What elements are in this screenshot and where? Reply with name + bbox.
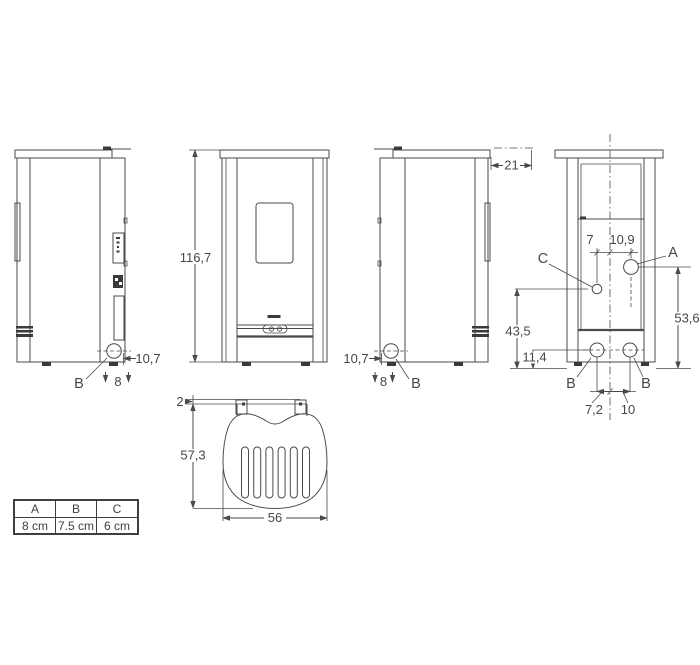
foot — [42, 362, 51, 366]
power-socket — [113, 275, 123, 288]
dim-top-width: 56 — [268, 510, 282, 525]
dim-right-outlet-offset: 10,7 — [343, 351, 368, 366]
dim-rear-b-right: 10 — [621, 402, 635, 417]
dim-left-outlet-offset: 10,7 — [135, 351, 160, 366]
dim-top-depth: 57,3 — [180, 448, 205, 463]
table-header-b: B — [56, 500, 97, 518]
stove-dimension-drawing-page: 10,7 8 B 116,7 — [0, 0, 700, 665]
brand-logo — [268, 315, 281, 318]
table-value-b: 7.5 cm — [56, 518, 97, 535]
table-header-c: C — [97, 500, 139, 518]
dim-rear-c-offset: 7 — [586, 232, 593, 247]
background — [0, 0, 700, 665]
dim-height: 116,7 — [180, 250, 212, 265]
foot — [301, 362, 310, 366]
foot — [109, 362, 118, 366]
dim-left-outlet-size: 8 — [114, 374, 121, 389]
dim-rear-a-height: 53,6 — [674, 311, 699, 326]
technical-drawing: 10,7 8 B 116,7 — [0, 0, 700, 665]
dim-top-bracket: 2 — [176, 394, 183, 409]
foot — [641, 362, 649, 366]
label-a: A — [668, 245, 678, 261]
foot — [574, 362, 582, 366]
foot — [242, 362, 251, 366]
dimension-table: A B C 8 cm 7.5 cm 6 cm — [13, 499, 139, 535]
foot — [387, 362, 396, 366]
table-header-a: A — [14, 500, 56, 518]
label-b-left-view: B — [74, 376, 84, 392]
dim-rear-b-height: 11,4 — [522, 350, 546, 365]
label-b1: B — [566, 376, 576, 392]
dim-rear-b-left: 7,2 — [585, 402, 603, 417]
dim-rear-a-offset: 10,9 — [609, 232, 634, 247]
dim-flue-offset: 21 — [504, 158, 518, 173]
label-b-right-view: B — [411, 376, 421, 392]
label-c: C — [538, 251, 548, 267]
table-value-a: 8 cm — [14, 518, 56, 535]
dim-rear-c-height: 43,5 — [505, 324, 530, 339]
label-b2: B — [641, 376, 651, 392]
table-value-c: 6 cm — [97, 518, 139, 535]
dim-right-outlet-size: 8 — [380, 374, 387, 389]
foot — [454, 362, 463, 366]
